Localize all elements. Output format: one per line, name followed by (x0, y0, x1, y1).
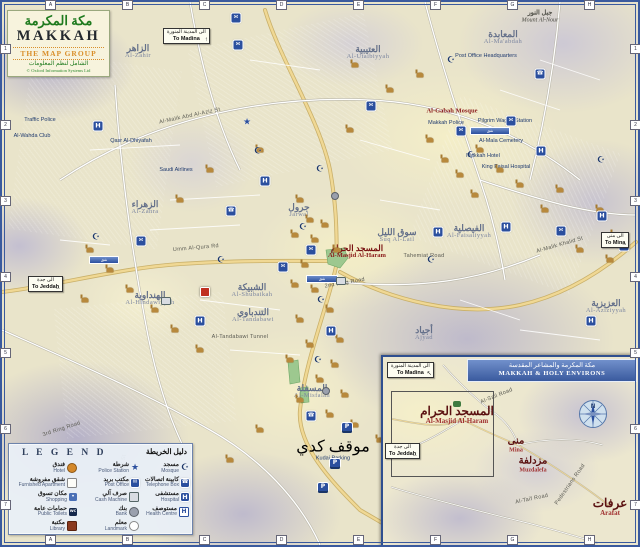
legend-item-health: مستوصفHealth CentreH (141, 505, 189, 520)
inset-label-arafat: عرفاتArafat (593, 497, 627, 517)
legend-item-english: Telephone Box (145, 483, 179, 488)
label-suq-al-lail: سوق الليلSuq Al-Lail (377, 228, 416, 244)
legend-item-post: مكتب بريدPost Office✉ (81, 476, 139, 491)
label-english-text: Al-Gabah Mosque (426, 109, 477, 116)
label-ajyad: أجيادAjyad (415, 326, 433, 342)
post-marker-icon: ✉ (279, 263, 288, 272)
map-label: Pilgrim Wagon Station (478, 119, 532, 125)
label-arabic-text: المسجد الحرام (420, 405, 494, 418)
mosque-glyph (307, 343, 314, 348)
mosque-marker-icon: ☪ (317, 297, 326, 306)
label-al-utaibiyyah: العتيبيةAl-Utaibiyyah (347, 45, 390, 61)
legend-title: L E G E N D (22, 448, 106, 458)
inset-title-banner: مكة المكرمة والمشاعر المقدسة MAKKAH & HO… (467, 359, 637, 382)
grid-letter-E: E (353, 535, 364, 545)
mosque-icon (427, 138, 434, 143)
legend-item-text: بنكBank (116, 506, 127, 518)
compass-north-letter: N (591, 404, 595, 410)
label-english-text: Post Office Headquarters (455, 54, 517, 60)
legend-item-english: Landmark (105, 527, 127, 532)
mosque-icon (352, 423, 359, 428)
label-english-text: Al-Shubaikah (232, 292, 273, 299)
mosque-marker-icon: ☪ (92, 234, 101, 243)
legend-item-police: شرطةPolice Station★ (81, 461, 139, 476)
mosque-glyph (607, 258, 614, 263)
post-marker-icon: ✉ (367, 102, 376, 111)
sign-arabic: الى المدينة المنورة (391, 364, 430, 370)
legend-item-text: معلمLandmark (105, 520, 127, 532)
mosque-icon (302, 263, 309, 268)
publisher-name: THE MAP GROUP (13, 47, 104, 60)
post-glyph: ✉ (279, 263, 288, 272)
mosque-icon (197, 348, 204, 353)
label-english-text: Suq Al-Lail (377, 237, 416, 244)
label-english-text: Ajyad (415, 335, 433, 342)
grid-number-4: 4 (630, 272, 640, 282)
label-english-text: Muzdalefa (519, 467, 548, 473)
legend-item-english: Mosque (161, 469, 179, 474)
hospital-marker-icon: H (598, 212, 607, 221)
legend-item-english: Health Centre (146, 512, 177, 517)
label-english-text: Al-Aziziyyah (586, 308, 626, 315)
arrow-icon: ← (412, 452, 418, 458)
mosque-glyph: ☪ (217, 257, 226, 266)
label-al-gabah-mosque: Al-Gabah Mosque (426, 109, 477, 116)
mosque-marker-icon: ☪ (597, 157, 606, 166)
mosque-glyph (257, 428, 264, 433)
mosque-glyph (342, 393, 349, 398)
mosque-glyph (227, 458, 234, 463)
grid-number-2: 2 (0, 120, 11, 130)
mosque-glyph (207, 168, 214, 173)
mosque-glyph: ☪ (467, 152, 476, 161)
legend-item-english: Shopping (38, 498, 67, 503)
mosque-icon (577, 248, 584, 253)
legend-item-text: حمامات عامةPublic Toilets (34, 506, 67, 518)
legend-item-english: Library (50, 527, 65, 532)
post-marker-icon: ✉ (507, 117, 516, 126)
legend-item-text: شقق مفروشةFurnished Apartment (19, 477, 65, 489)
grid-number-5: 5 (0, 348, 11, 358)
direction-sign: الى منىTo Mina→ (601, 232, 629, 248)
label-english-text: Qasr Al-Dhiyafah (110, 139, 152, 145)
legend-item-text: شرطةPolice Station (98, 462, 129, 474)
parking-glyph: P (330, 459, 340, 467)
legend-item-english: Police Station (98, 469, 129, 474)
label-al-zahra: الزهراءAl-Zahra (131, 200, 158, 216)
map-label: Tahemiat Road (404, 254, 445, 260)
grid-letter-E: E (353, 0, 364, 10)
hospital-marker-icon: H (587, 317, 596, 326)
label-english-text: Al-Zahra (131, 209, 158, 216)
parking-marker-icon: P (318, 483, 328, 491)
mosque-icon (417, 73, 424, 78)
mosque-icon (152, 308, 159, 313)
mosque-icon (292, 283, 299, 288)
mosque-glyph (352, 63, 359, 68)
direction-sign: الى المدينة المنورةTo Madina↖ (387, 362, 434, 378)
mosque-icon (207, 168, 214, 173)
mosque-glyph (292, 233, 299, 238)
arrow-icon: ← (55, 285, 61, 291)
mosque-glyph (457, 173, 464, 178)
mosque-icon (307, 218, 314, 223)
label-al-aziziyyah: العزيزيةAl-Aziziyyah (586, 299, 626, 315)
hospital-glyph: H (502, 223, 511, 232)
mosque-glyph (387, 88, 394, 93)
bank-marker-icon (331, 192, 339, 200)
grid-letter-A: A (45, 0, 56, 10)
direction-sign: الى المدينة المنورةTo Madina↑ (163, 28, 210, 44)
legend-column-3: مسجدMosque☪كابينة اتصالاتTelephone Box☎م… (141, 461, 189, 519)
label-english-text: Al-Masjid Al-Haram (328, 253, 386, 260)
police-icon: ★ (131, 464, 139, 472)
legend-item-text: كابينة اتصالاتTelephone Box (145, 477, 179, 489)
title-arabic: مكة المكرمة (10, 14, 107, 28)
grid-number-2: 2 (630, 120, 640, 130)
grid-letter-A: A (45, 535, 56, 545)
parking-marker-icon: P (330, 459, 340, 467)
label-mount-al-nour: جبل النورMount Al-Nour (522, 10, 559, 23)
mosque-icon (82, 298, 89, 303)
toilets-icon: WC (69, 508, 77, 516)
label-english-text: Saudi Airlines (159, 168, 192, 174)
bank-icon (129, 507, 139, 517)
grid-number-6: 6 (0, 424, 11, 434)
grid-number-4: 4 (0, 272, 11, 282)
health-icon: H (179, 507, 189, 517)
bank-marker-icon (322, 387, 330, 395)
mosque-icon (334, 248, 341, 253)
mosque-glyph: ☪ (447, 57, 456, 66)
apartment-icon (67, 478, 77, 488)
mosque-icon (87, 248, 94, 253)
mosque-glyph (472, 193, 479, 198)
mosque-icon (107, 268, 114, 273)
mosque-glyph (327, 308, 334, 313)
mosque-glyph: ☪ (316, 166, 325, 175)
compass-rose-icon: N (578, 399, 608, 429)
mosque-glyph (517, 183, 524, 188)
shopping-icon: • (69, 493, 77, 501)
legend-title-arabic: دليل الخريطة (146, 447, 187, 456)
grid-number-7: 7 (630, 500, 640, 510)
grid-letter-D: D (276, 0, 287, 10)
mosque-icon (297, 198, 304, 203)
parkred-marker-icon (200, 287, 210, 297)
post-glyph: ✉ (367, 102, 376, 111)
label-english-text: Pilgrim Wagon Station (478, 119, 532, 125)
grid-letter-B: B (122, 535, 133, 545)
grid-number-6: 6 (630, 424, 640, 434)
legend-item-text: صرف آليCash Machine (95, 491, 127, 503)
inset-label-muzdalefa: مزدلفةMuzdalefa (519, 457, 548, 474)
mosque-glyph (334, 248, 341, 253)
label-arabic-text: موقف كدي (296, 440, 370, 457)
legend-item-text: مسجدMosque (161, 462, 179, 474)
mosque-marker-icon: ☪ (299, 224, 308, 233)
label-english-text: Mount Al-Nour (522, 17, 559, 23)
mosque-icon (607, 258, 614, 263)
mosque-icon (297, 318, 304, 323)
legend-item-shopping: مكان تسوقShopping• (13, 490, 77, 505)
legend-item-text: مكتب بريدPost Office (103, 477, 129, 489)
hospital-glyph: H (587, 317, 596, 326)
hospital-glyph: H (196, 317, 205, 326)
mosque-icon (477, 148, 484, 153)
hospital-glyph: H (261, 177, 270, 186)
legend-item-cash: صرف آليCash Machine (81, 490, 139, 505)
legend-item-english: Public Toilets (34, 512, 67, 517)
mosque-icon (322, 223, 329, 228)
parkred-glyph (200, 287, 210, 297)
map-label: Saudi Airlines (159, 168, 192, 174)
mosque-glyph (322, 223, 329, 228)
map-label: Traffic Police (24, 118, 55, 124)
grid-number-3: 3 (0, 196, 11, 206)
mosque-icon (332, 363, 339, 368)
legend-item-english: Furnished Apartment (19, 483, 65, 488)
phone-icon: ☎ (181, 479, 189, 487)
label-english-text: King Faisal Hospital (482, 165, 531, 171)
cash-marker-icon (161, 297, 171, 305)
grid-letter-H: H (584, 0, 595, 10)
grid-letter-D: D (276, 535, 287, 545)
hospital-marker-icon: H (196, 317, 205, 326)
arrow-icon: ↑ (205, 37, 208, 43)
post-icon: ✉ (131, 479, 139, 487)
legend-item-english: Hotel (53, 469, 65, 474)
mosque-icon (342, 393, 349, 398)
arrow-icon: → (621, 241, 627, 247)
parking-glyph: P (318, 483, 328, 491)
grid-letter-F: F (430, 0, 441, 10)
legend-panel: L E G E N D دليل الخريطة فندقHotelشقق مف… (8, 443, 193, 535)
map-label: Post Office Headquarters (455, 54, 517, 60)
mosque-icon (457, 173, 464, 178)
grid-letter-B: B (122, 0, 133, 10)
grid-number-1: 1 (630, 44, 640, 54)
grid-number-7: 7 (0, 500, 11, 510)
mosque-glyph (177, 198, 184, 203)
label-english-text: Al-Wahda Club (14, 134, 51, 140)
grid-letter-G: G (507, 0, 518, 10)
mosque-icon (127, 288, 134, 293)
legend-item-library: مكتبةLibrary (13, 519, 77, 534)
mosque-marker-icon: ☪ (316, 166, 325, 175)
legend-item-english: Cash Machine (95, 498, 127, 503)
legend-item-hotel: فندقHotel (13, 461, 77, 476)
mosque-glyph (287, 358, 294, 363)
mosque-icon (337, 338, 344, 343)
label-english-text: Al-Faisaliyyah (447, 233, 491, 240)
post-marker-icon: ✉ (307, 246, 316, 255)
hospital-marker-icon: H (537, 147, 546, 156)
label-arabic-text: مزدلفة (519, 457, 548, 468)
mosque-glyph (292, 283, 299, 288)
mosque-icon: ☪ (181, 464, 189, 472)
post-glyph: ✉ (234, 41, 243, 50)
inset-title-arabic: مكة المكرمة والمشاعر المقدسة (468, 362, 636, 370)
legend-item-text: مكان تسوقShopping (38, 491, 67, 503)
legend-item-english: Hospital (155, 498, 179, 503)
label-al-shubaikah: الشبيكةAl-Shubaikah (232, 283, 273, 299)
mosque-icon (312, 238, 319, 243)
inset-title: MAKKAH & HOLY ENVIRONS (468, 370, 636, 378)
label-arabic-text: منى (508, 437, 525, 448)
hospital-marker-icon: H (94, 122, 103, 131)
mosque-glyph (312, 238, 319, 243)
mosque-icon (347, 128, 354, 133)
landmark-icon (129, 521, 139, 531)
post-marker-icon: ✉ (137, 237, 146, 246)
mosque-glyph (427, 138, 434, 143)
mosque-glyph (172, 328, 179, 333)
legend-item-text: مستشفىHospital (155, 491, 179, 503)
mosque-glyph (442, 158, 449, 163)
mosque-glyph (297, 398, 304, 403)
mosque-icon (287, 358, 294, 363)
mosque-glyph: ☪ (597, 157, 606, 166)
mosque-icon (517, 183, 524, 188)
legend-column-2: شرطةPolice Station★مكتب بريدPost Office✉… (81, 461, 139, 534)
grid-letter-C: C (199, 535, 210, 545)
hospital-glyph: H (94, 122, 103, 131)
grid-number-1: 1 (0, 44, 11, 54)
legend-item-text: فندقHotel (53, 462, 65, 474)
mosque-glyph (337, 338, 344, 343)
mosque-glyph (577, 248, 584, 253)
label-english-text: Mina (508, 447, 525, 453)
mosque-glyph: ☪ (299, 224, 308, 233)
grid-number-5: 5 (630, 348, 640, 358)
mosque-glyph: ☪ (314, 357, 323, 366)
map-label: Qasr Al-Dhiyafah (110, 139, 152, 145)
mosque-glyph (317, 378, 324, 383)
bank-glyph (331, 192, 339, 200)
tunnel-label: نفق (470, 127, 510, 135)
tunnel-label: نفق (89, 256, 119, 264)
legend-item-english: Post Office (103, 483, 129, 488)
mosque-glyph (107, 268, 114, 273)
mosque-glyph (417, 73, 424, 78)
legend-item-mosque: مسجدMosque☪ (141, 461, 189, 476)
mosque-icon (442, 158, 449, 163)
grid-letter-H: H (584, 535, 595, 545)
label-arabic-text: جبل النور (522, 10, 559, 17)
mosque-icon (387, 88, 394, 93)
parking-glyph: P (342, 423, 352, 431)
publisher-arabic: الشامل لنظم المعلومات (10, 61, 107, 68)
post-glyph: ✉ (307, 246, 316, 255)
legend-item-phone: كابينة اتصالاتTelephone Box☎ (141, 476, 189, 491)
label-al-zahir: الزاهرAl-Zahir (125, 44, 151, 60)
bank-glyph (322, 387, 330, 395)
label-al-faisaliyyah: الفيصليةAl-Faisaliyyah (447, 224, 491, 240)
sign-english: To Madina (167, 36, 206, 42)
phone-marker-icon: ☎ (536, 70, 545, 79)
post-marker-icon: ✉ (457, 127, 466, 136)
hospital-marker-icon: H (434, 228, 443, 237)
hospital-glyph: H (434, 228, 443, 237)
makkah-map-page: الزاهرAl-ZahirالعتيبيةAl-Utaibiyyahالمعا… (0, 0, 640, 547)
legend-item-apartment: شقق مفروشةFurnished Apartment (13, 476, 77, 491)
phone-glyph: ☎ (307, 412, 316, 421)
arrow-icon: ↖ (427, 370, 432, 377)
mosque-marker-icon: ☪ (314, 357, 323, 366)
mosque-glyph: ☪ (317, 297, 326, 306)
hospital-marker-icon: H (327, 327, 336, 336)
mosque-marker-icon: ☪ (447, 57, 456, 66)
legend-column-1: فندقHotelشقق مفروشةFurnished Apartmentمك… (13, 461, 77, 534)
mosque-glyph (352, 423, 359, 428)
post-glyph: ✉ (507, 117, 516, 126)
mosque-glyph (327, 413, 334, 418)
mosque-glyph (127, 288, 134, 293)
post-glyph: ✉ (557, 227, 566, 236)
legend-item-landmark: معلمLandmark (81, 519, 139, 534)
post-marker-icon: ✉ (234, 41, 243, 50)
mosque-icon (177, 198, 184, 203)
hospital-icon: H (181, 493, 189, 501)
post-glyph: ✉ (232, 14, 241, 23)
mosque-marker-icon: ☪ (217, 257, 226, 266)
map-title-block: مكة المكرمة MAKKAH THE MAP GROUP الشامل … (7, 10, 110, 77)
mosque-glyph (82, 298, 89, 303)
cash-marker-icon (336, 277, 346, 285)
label-english-text: Al-Tandabawi Tunnel (212, 335, 269, 341)
page-title: MAKKAH (10, 28, 107, 45)
mosque-glyph: ☪ (92, 234, 101, 243)
mosque-glyph (297, 198, 304, 203)
phone-marker-icon: ☎ (307, 412, 316, 421)
cash-glyph (161, 297, 171, 305)
mosque-icon (172, 328, 179, 333)
mosque-glyph: ☪ (254, 148, 263, 157)
sign-arabic: الى منى (605, 234, 625, 240)
mosque-icon (317, 378, 324, 383)
copyright-line: © Oxford Information Systems Ltd (10, 68, 107, 73)
label-arabic-text: عرفات (593, 497, 627, 510)
label-english-text: Al-Utaibiyyah (347, 54, 390, 61)
post-marker-icon: ✉ (557, 227, 566, 236)
sign-arabic: الى المدينة المنورة (167, 30, 206, 36)
mosque-glyph: ☪ (427, 257, 436, 266)
cash-icon (129, 492, 139, 502)
mosque-glyph (87, 248, 94, 253)
mosque-glyph (347, 128, 354, 133)
mosque-icon (472, 193, 479, 198)
mosque-icon (497, 168, 504, 173)
inset-label-haram: المسجد الحرامAl-Masjid Al-Haram (420, 405, 494, 425)
mosque-marker-icon: ☪ (467, 152, 476, 161)
mosque-glyph (497, 168, 504, 173)
mosque-icon (327, 308, 334, 313)
mosque-glyph (152, 308, 159, 313)
mosque-glyph (542, 208, 549, 213)
mosque-icon (257, 428, 264, 433)
map-label: Al-Wahda Club (14, 134, 51, 140)
hospital-marker-icon: H (261, 177, 270, 186)
mosque-glyph (302, 263, 309, 268)
mosque-icon (352, 63, 359, 68)
direction-sign: الى جدةTo Jeddah← (28, 276, 63, 292)
map-label: Al-Mala Cemetery (479, 139, 523, 145)
mosque-glyph (197, 348, 204, 353)
mosque-icon (327, 413, 334, 418)
label-english-text: Al-Zahir (125, 53, 151, 60)
legend-item-hospital: مستشفىHospitalH (141, 490, 189, 505)
